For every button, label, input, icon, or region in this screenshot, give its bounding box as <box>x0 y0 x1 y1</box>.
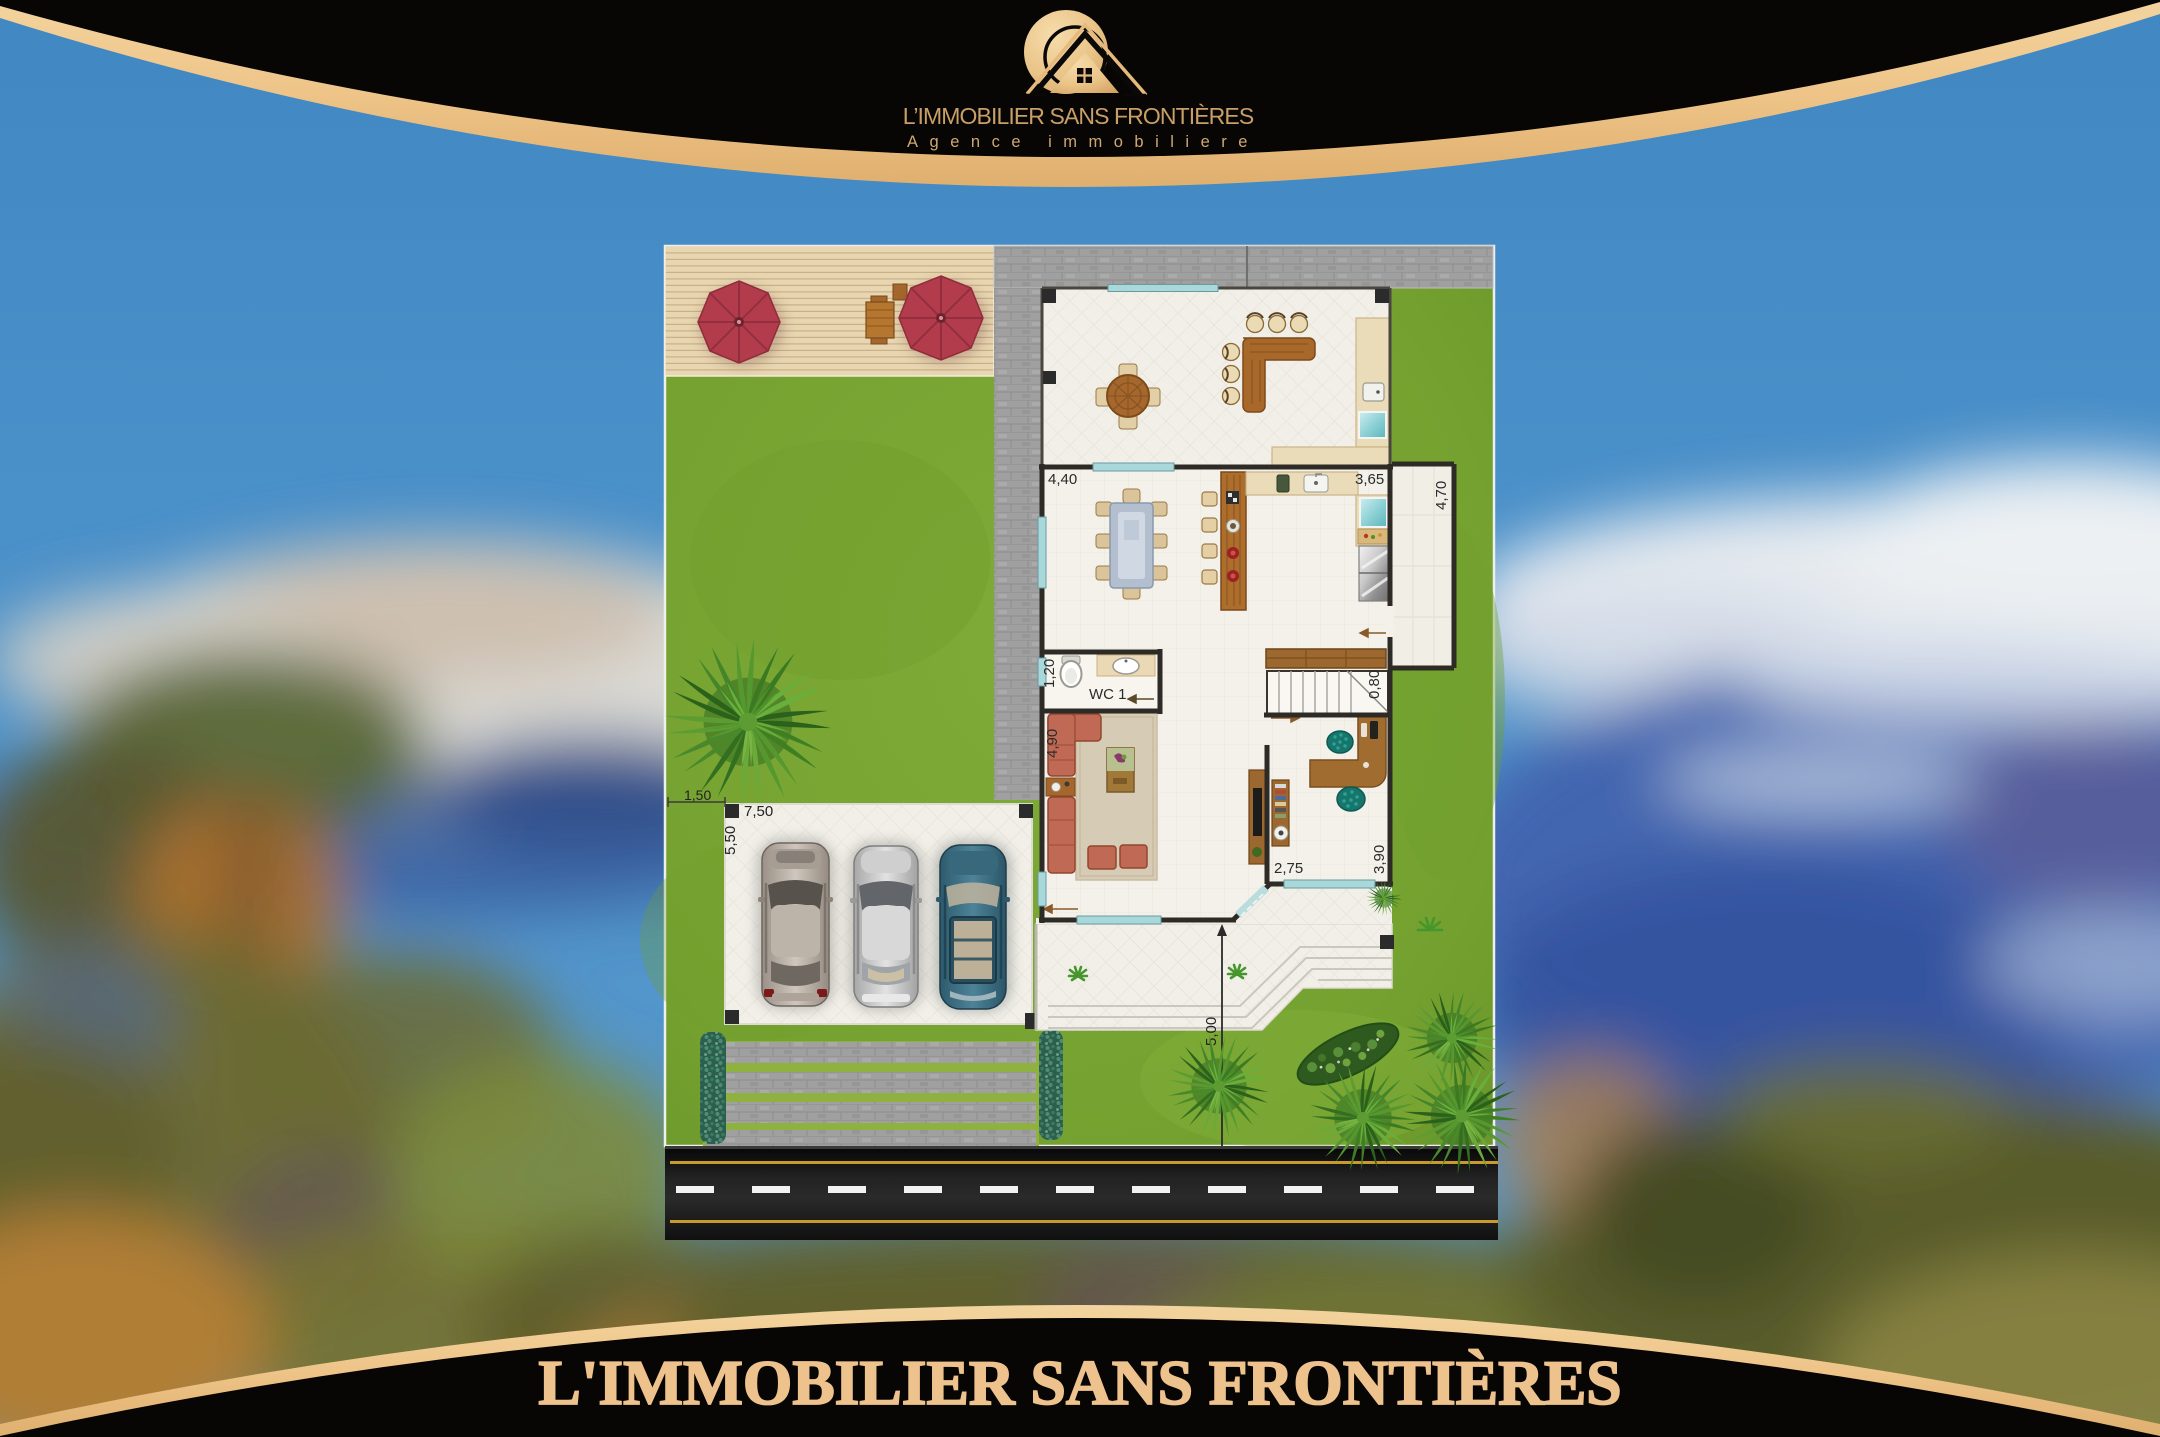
svg-text:4,40: 4,40 <box>1048 471 1077 488</box>
svg-text:L’IMMOBILIER SANS FRONTIÈRES: L’IMMOBILIER SANS FRONTIÈRES <box>903 103 1254 129</box>
svg-text:WC 1: WC 1 <box>1089 686 1127 703</box>
svg-text:5,00: 5,00 <box>1203 1017 1220 1046</box>
svg-text:0,80: 0,80 <box>1366 670 1383 699</box>
svg-text:L'IMMOBILIER SANS FRONTIÈRES: L'IMMOBILIER SANS FRONTIÈRES <box>538 1347 1621 1418</box>
svg-text:1,50: 1,50 <box>684 787 711 803</box>
svg-text:Agence immobiliere: Agence immobiliere <box>907 133 1259 151</box>
svg-text:4,70: 4,70 <box>1433 481 1450 510</box>
svg-text:1,20: 1,20 <box>1041 659 1058 688</box>
svg-text:7,50: 7,50 <box>744 803 773 820</box>
svg-text:5,50: 5,50 <box>722 826 739 855</box>
svg-text:4,90: 4,90 <box>1044 729 1061 758</box>
svg-text:3,90: 3,90 <box>1371 845 1388 874</box>
svg-text:2,75: 2,75 <box>1274 860 1303 877</box>
svg-text:3,65: 3,65 <box>1355 471 1384 488</box>
